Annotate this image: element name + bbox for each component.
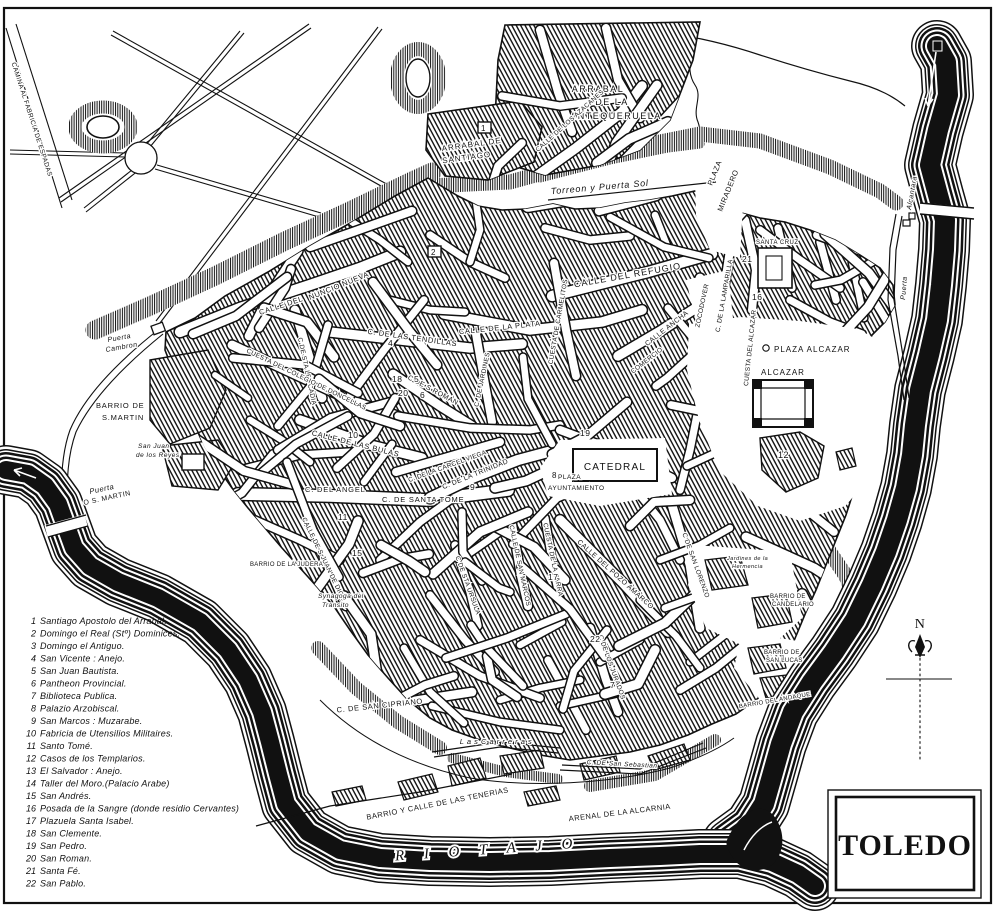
svg-text:17: 17	[26, 816, 37, 826]
svg-text:21: 21	[742, 254, 752, 264]
svg-text:L a s C a r r e r a s: L a s C a r r e r a s	[460, 737, 532, 746]
svg-text:Domingo el Real (Stº) Dominice: Domingo el Real (Stº) Dominices.	[40, 629, 180, 639]
svg-text:17: 17	[548, 572, 558, 582]
svg-text:Palazio Arzobiscal.: Palazio Arzobiscal.	[40, 703, 120, 713]
svg-text:BARRIO DE: BARRIO DE	[770, 594, 806, 600]
svg-text:22: 22	[25, 878, 36, 888]
svg-text:9: 9	[31, 716, 36, 726]
svg-text:San Clemente.: San Clemente.	[40, 828, 102, 838]
svg-text:16: 16	[752, 292, 762, 302]
svg-text:4: 4	[31, 654, 36, 664]
svg-text:Posada de la Sangre (donde res: Posada de la Sangre (donde residio Cerva…	[40, 803, 239, 813]
svg-text:PLAZA: PLAZA	[558, 474, 581, 481]
svg-text:San Andrés.: San Andrés.	[40, 791, 91, 801]
svg-text:Santa Fé.: Santa Fé.	[40, 866, 81, 876]
svg-text:16: 16	[26, 803, 36, 813]
svg-text:5: 5	[414, 374, 419, 384]
svg-text:Hermencia: Hermencia	[732, 564, 763, 570]
svg-text:PLAZA ALCAZAR: PLAZA ALCAZAR	[774, 345, 851, 354]
svg-text:1: 1	[31, 616, 36, 626]
svg-text:19: 19	[26, 841, 36, 851]
svg-text:Santiago Apostolo del Arrabal.: Santiago Apostolo del Arrabal.	[40, 616, 167, 626]
svg-text:San Pedro.: San Pedro.	[40, 841, 87, 851]
svg-text:1: 1	[481, 124, 486, 133]
svg-text:San Vicente : Anejo.: San Vicente : Anejo.	[40, 654, 125, 664]
svg-text:SANTA CRUZ: SANTA CRUZ	[756, 240, 799, 246]
svg-text:15: 15	[26, 791, 37, 801]
svg-text:Biblioteca Publica.: Biblioteca Publica.	[40, 691, 117, 701]
svg-text:21: 21	[25, 866, 36, 876]
svg-text:Transito: Transito	[322, 602, 349, 609]
svg-text:20: 20	[398, 388, 408, 398]
svg-text:6: 6	[31, 679, 36, 689]
svg-text:Synagoga del: Synagoga del	[318, 593, 364, 600]
svg-text:AYUNTAMIENTO: AYUNTAMIENTO	[548, 485, 605, 492]
svg-text:Pantheon Provincial.: Pantheon Provincial.	[40, 679, 127, 689]
svg-text:10: 10	[26, 728, 36, 738]
svg-text:BARRIO DE: BARRIO DE	[764, 650, 800, 656]
svg-text:San Pablo.: San Pablo.	[40, 878, 86, 888]
svg-text:12: 12	[778, 450, 789, 460]
svg-text:6: 6	[420, 390, 425, 400]
svg-text:Taller del Moro.(Palacio Arabe: Taller del Moro.(Palacio Arabe)	[40, 778, 170, 788]
svg-text:San Roman.: San Roman.	[40, 853, 92, 863]
svg-text:9: 9	[470, 482, 475, 492]
svg-text:Plazuela Santa Isabel.: Plazuela Santa Isabel.	[40, 816, 134, 826]
svg-text:2: 2	[30, 629, 36, 639]
svg-text:BARRIO DE LA JUDERA: BARRIO DE LA JUDERA	[250, 562, 323, 568]
svg-text:BARRIO DE: BARRIO DE	[96, 401, 144, 410]
svg-text:SAN LUCAS: SAN LUCAS	[766, 658, 803, 664]
svg-text:3: 3	[31, 641, 36, 651]
svg-text:San Juan Bautista.: San Juan Bautista.	[40, 666, 119, 676]
svg-text:Domingo el Antiguo.: Domingo el Antiguo.	[40, 641, 125, 651]
svg-text:C. DEL ANGEL: C. DEL ANGEL	[305, 485, 366, 494]
svg-text:CANDELARIO: CANDELARIO	[772, 602, 814, 608]
svg-text:4: 4	[388, 338, 393, 348]
svg-text:El Salvador : Anejo.: El Salvador : Anejo.	[40, 766, 123, 776]
svg-text:8: 8	[31, 703, 36, 713]
svg-text:11: 11	[338, 512, 348, 522]
svg-text:de los Reyes: de los Reyes	[136, 452, 180, 459]
svg-text:San Juan: San Juan	[138, 443, 169, 450]
svg-text:2: 2	[431, 248, 436, 257]
svg-text:11: 11	[27, 741, 36, 751]
svg-text:18: 18	[392, 374, 402, 384]
svg-text:14: 14	[26, 778, 36, 788]
svg-text:CATEDRAL: CATEDRAL	[584, 462, 646, 473]
svg-text:Casos de los Templarios.: Casos de los Templarios.	[40, 753, 146, 763]
svg-text:Fabricia de Utensilios Militai: Fabricia de Utensilios Militaires.	[40, 728, 173, 738]
svg-text:Santo Tomé.: Santo Tomé.	[40, 741, 93, 751]
svg-text:Jardines de la: Jardines de la	[726, 556, 768, 562]
svg-text:20: 20	[25, 853, 36, 863]
svg-text:7: 7	[610, 680, 615, 690]
svg-text:8: 8	[552, 471, 557, 480]
svg-text:12: 12	[26, 753, 36, 763]
svg-text:C. DE SANTA TOME: C. DE SANTA TOME	[382, 495, 464, 504]
svg-text:18: 18	[26, 828, 36, 838]
svg-text:10: 10	[348, 430, 358, 440]
svg-text:22: 22	[590, 634, 600, 644]
svg-text:N: N	[915, 617, 926, 632]
svg-text:San Marcos : Muzarabe.: San Marcos : Muzarabe.	[40, 716, 142, 726]
svg-text:19: 19	[580, 428, 590, 438]
svg-text:TOLEDO: TOLEDO	[838, 829, 972, 862]
svg-text:15: 15	[352, 548, 362, 558]
svg-text:S.MARTIN: S.MARTIN	[102, 413, 144, 422]
svg-text:13: 13	[26, 766, 36, 776]
svg-text:ALCAZAR: ALCAZAR	[761, 368, 805, 377]
